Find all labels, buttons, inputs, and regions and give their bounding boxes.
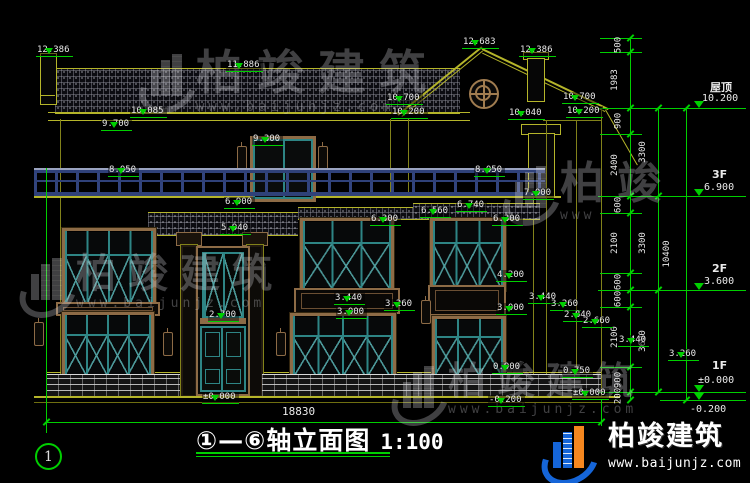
elevation-value: 12.386 — [36, 45, 73, 57]
dim-value: 200 — [614, 388, 624, 404]
elevation-triangle-icon — [627, 338, 635, 344]
elevation-value: ±0.000 — [572, 388, 609, 400]
elevation-mark: 6.900 — [224, 189, 255, 209]
elevation-mark: 3.260 — [384, 291, 415, 311]
level-elevation: 10.200 — [702, 93, 738, 104]
elevation-mark: 3.440 — [618, 327, 649, 347]
watermark-logo-icon — [142, 50, 188, 104]
elevation-mark: 2.660 — [582, 308, 613, 328]
elevation-triangle-icon — [139, 109, 147, 115]
elevation-triangle-icon — [217, 313, 225, 319]
elevation-triangle-icon — [379, 217, 387, 223]
elevation-triangle-icon — [501, 365, 509, 371]
elevation-triangle-icon — [572, 313, 580, 319]
level-elevation: 6.900 — [704, 182, 734, 193]
elevation-mark: 5.940 — [220, 215, 251, 235]
dim-value: 900 — [614, 113, 624, 129]
dim-tick — [627, 396, 635, 404]
logo-tower-icon — [574, 426, 584, 468]
elevation-mark: 3.000 — [336, 299, 367, 319]
elevation-mark: 10.040 — [508, 100, 545, 120]
logo-tower-icon — [515, 182, 523, 208]
elevation-value: 10.200 — [566, 106, 603, 118]
title-scale: 1:100 — [380, 430, 443, 454]
elevation-triangle-icon — [677, 352, 685, 358]
level-name: 2F — [712, 262, 727, 275]
elevation-triangle-icon — [483, 168, 491, 174]
elevation-triangle-icon — [471, 40, 479, 46]
elevation-triangle-icon — [575, 109, 583, 115]
dim-value: 10400 — [662, 240, 672, 267]
dim-extension-line — [600, 367, 642, 368]
dim-value: 600 — [614, 273, 624, 289]
elevation-mark: 8.050 — [108, 157, 139, 177]
elevation-triangle-icon — [235, 63, 243, 69]
elevation-triangle-icon — [429, 209, 437, 215]
elevation-mark: 6.740 — [456, 192, 487, 212]
logo-tower-icon — [424, 366, 434, 408]
elevation-mark: 6.300 — [492, 206, 523, 226]
elevation-triangle-icon — [528, 48, 536, 54]
elevation-triangle-icon — [537, 295, 545, 301]
level-name: 1F — [712, 359, 727, 372]
logo-tower-icon — [151, 70, 159, 96]
brand-url: www.baijunjz.com — [608, 456, 741, 471]
elevation-triangle-icon — [501, 217, 509, 223]
logo-tower-icon — [31, 274, 39, 300]
elevation-triangle-icon — [45, 48, 53, 54]
elevation-value: 10.085 — [130, 106, 167, 118]
logo-tower-icon — [172, 54, 182, 96]
watermark-logo-icon — [394, 362, 440, 416]
elevation-mark: 2.700 — [208, 302, 239, 322]
level-triangle-icon — [694, 393, 704, 400]
level-elevation: ±0.000 — [698, 375, 734, 386]
cad-elevation-drawing: 18830 1 ①—⑥轴立面图1:100 柏竣建筑 www.baijunjz.c… — [0, 0, 750, 483]
dim-value: 600 — [614, 196, 624, 212]
elevation-mark: -0.200 — [488, 387, 525, 407]
logo-tower-icon — [413, 372, 422, 408]
brand-block: 柏竣建筑 www.baijunjz.com — [544, 422, 750, 478]
elevation-triangle-icon — [261, 137, 269, 143]
watermark-brand: 柏竣建筑 — [76, 254, 284, 294]
dim-value: 1983 — [610, 69, 620, 91]
logo-swoosh-icon — [11, 258, 86, 328]
elevation-value: 12.386 — [519, 45, 556, 57]
elevation-value: 12.683 — [462, 37, 499, 49]
level-elevation: -0.200 — [690, 404, 726, 415]
elevation-mark: 11.886 — [226, 52, 263, 72]
elevation-mark: 3.260 — [668, 341, 699, 361]
elevation-triangle-icon — [505, 306, 513, 312]
elevation-mark: ±0.000 — [202, 384, 239, 404]
total-width-dimension: 18830 — [282, 405, 315, 418]
elevation-triangle-icon — [211, 395, 219, 401]
dim-value: 3300 — [638, 141, 648, 163]
level-triangle-icon — [694, 283, 704, 290]
elevation-triangle-icon — [117, 168, 125, 174]
elevation-triangle-icon — [497, 398, 505, 404]
title-underline-2 — [196, 456, 390, 457]
elevation-triangle-icon — [233, 200, 241, 206]
elevation-mark: 3.000 — [496, 295, 527, 315]
elevation-triangle-icon — [393, 302, 401, 308]
elevation-value: 10.200 — [391, 107, 428, 119]
watermark-logo-icon — [22, 254, 68, 308]
elevation-value: 11.886 — [226, 60, 263, 72]
elevation-triangle-icon — [465, 203, 473, 209]
elevation-value: -0.200 — [488, 395, 525, 407]
elevation-mark: 9.700 — [101, 111, 132, 131]
elevation-mark: 10.085 — [130, 98, 167, 118]
logo-tower-icon — [161, 60, 170, 96]
dim-chain-line-middle — [658, 108, 659, 392]
dim-value: 2400 — [610, 154, 620, 176]
annotation-layer: 12.38611.88610.0859.70012.68312.38610.70… — [0, 0, 750, 483]
elevation-mark: 10.200 — [566, 98, 603, 118]
dim-value: 3300 — [638, 232, 648, 254]
elevation-mark: 10.200 — [391, 99, 428, 119]
level-triangle-icon — [694, 189, 704, 196]
elevation-mark: 12.386 — [36, 37, 73, 57]
elevation-triangle-icon — [110, 122, 118, 128]
elevation-triangle-icon — [571, 369, 579, 375]
elevation-triangle-icon — [517, 111, 525, 117]
elevation-mark: 12.683 — [462, 29, 499, 49]
elevation-triangle-icon — [532, 191, 540, 197]
elevation-triangle-icon — [505, 273, 513, 279]
title-text: ①—⑥轴立面图 — [196, 426, 370, 455]
elevation-triangle-icon — [581, 391, 589, 397]
watermark-url: www.baijunjz.com — [76, 296, 284, 311]
watermark-url: www.baijunjz.com — [448, 402, 644, 417]
elevation-mark: 6.300 — [370, 206, 401, 226]
elevation-mark: ±0.000 — [572, 380, 609, 400]
elevation-mark: 4.200 — [496, 262, 527, 282]
dim-value: 500 — [614, 37, 624, 53]
elevation-triangle-icon — [229, 226, 237, 232]
elevation-triangle-icon — [400, 110, 408, 116]
axis-bubble-1: 1 — [35, 443, 62, 470]
level-line — [660, 400, 746, 401]
logo-tower-icon — [403, 382, 411, 408]
dim-value: 900 — [614, 371, 624, 387]
elevation-mark: 0.750 — [562, 358, 593, 378]
elevation-triangle-icon — [345, 310, 353, 316]
dim-value: 2100 — [610, 232, 620, 254]
elevation-mark: 7.000 — [523, 180, 554, 200]
elevation-mark: 6.560 — [420, 198, 451, 218]
dim-value: 600 — [614, 290, 624, 306]
level-line — [598, 108, 746, 109]
dim-extension-line — [600, 134, 642, 135]
title-underline — [196, 452, 390, 454]
logo-tower-icon — [41, 264, 50, 300]
elevation-mark: 12.386 — [519, 37, 556, 57]
logo-tower-icon — [553, 442, 561, 468]
level-elevation: 3.600 — [704, 276, 734, 287]
elevation-value: 10.040 — [508, 108, 545, 120]
logo-tower-icon — [52, 258, 62, 300]
elevation-value: ±0.000 — [202, 392, 239, 404]
brand-name: 柏竣建筑 — [608, 421, 724, 452]
brand-logo-icon — [544, 422, 600, 478]
watermark: 柏竣建筑www.baijunjz.com — [22, 254, 284, 311]
elevation-mark: 8.050 — [474, 157, 505, 177]
level-name: 3F — [712, 168, 727, 181]
axis-bubble-label: 1 — [44, 449, 53, 465]
elevation-mark: 0.900 — [492, 354, 523, 374]
elevation-triangle-icon — [591, 319, 599, 325]
level-triangle-icon — [694, 385, 704, 392]
elevation-mark: 9.300 — [252, 126, 283, 146]
logo-tower-icon — [563, 432, 572, 468]
dim-extension-line — [600, 213, 642, 214]
